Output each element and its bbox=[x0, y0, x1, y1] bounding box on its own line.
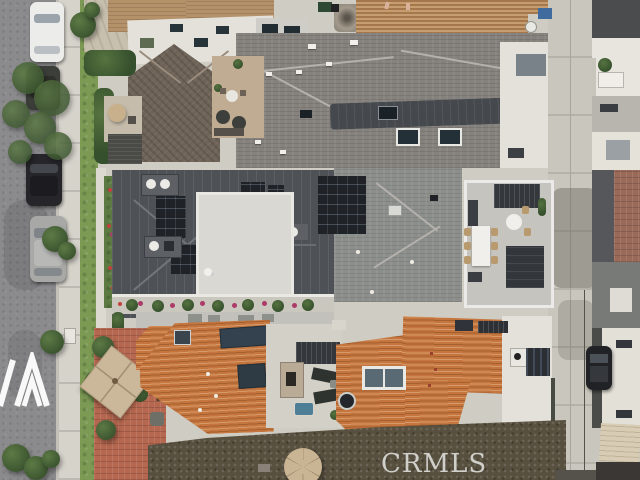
tree bbox=[8, 140, 32, 164]
magenta-flowers bbox=[170, 303, 175, 308]
rooftop-equipment bbox=[508, 148, 524, 158]
flower-clump bbox=[152, 300, 164, 312]
roof-vent bbox=[206, 372, 210, 376]
east-roof-box bbox=[610, 288, 632, 312]
deck-planter bbox=[538, 198, 546, 216]
magenta-flowers bbox=[292, 303, 297, 308]
roof-box bbox=[332, 320, 346, 330]
courtyard-pergola bbox=[296, 342, 340, 364]
flower-clump bbox=[302, 299, 314, 311]
rooftop-equipment bbox=[455, 320, 473, 331]
deck-pergola bbox=[494, 184, 540, 208]
tree bbox=[34, 80, 70, 116]
round-roof-vent bbox=[338, 392, 356, 410]
skylight bbox=[438, 128, 462, 146]
crmls-watermark: CRMLS bbox=[381, 449, 487, 479]
skylight bbox=[170, 24, 183, 32]
skylight bbox=[174, 330, 191, 345]
solar-array bbox=[318, 176, 366, 234]
deck-plant bbox=[233, 59, 243, 69]
tree bbox=[84, 2, 100, 18]
roof-vent-dark bbox=[430, 195, 438, 201]
flower-clump bbox=[212, 300, 224, 312]
vent-box-cap bbox=[514, 353, 521, 360]
tile-cap bbox=[434, 368, 437, 371]
silver-suv-rear-glass bbox=[34, 268, 62, 276]
roof-vent bbox=[296, 70, 302, 74]
patio-furniture bbox=[128, 116, 136, 124]
black-suv-windshield bbox=[30, 164, 58, 173]
roof-vent bbox=[214, 394, 218, 398]
rooftop-equipment bbox=[478, 321, 508, 333]
aerial-photo: CRMLS bbox=[0, 0, 640, 480]
red-flowers bbox=[107, 224, 111, 228]
magenta-flowers bbox=[232, 303, 237, 308]
east-window bbox=[600, 104, 618, 112]
bistro-chair bbox=[524, 228, 531, 236]
chimney-cap bbox=[146, 179, 156, 189]
dining-table bbox=[472, 226, 490, 266]
east-brick-deck bbox=[614, 170, 640, 262]
skylight bbox=[194, 38, 208, 47]
dining-chair bbox=[464, 228, 471, 236]
utility-line bbox=[584, 290, 585, 480]
skylight-pane bbox=[365, 369, 383, 387]
dining-chair bbox=[464, 242, 471, 250]
magenta-flowers bbox=[138, 301, 143, 306]
red-flowers bbox=[118, 302, 122, 306]
skylight bbox=[216, 26, 229, 34]
roof-worker bbox=[406, 3, 410, 10]
roof-vent bbox=[370, 290, 374, 294]
magenta-flowers bbox=[200, 301, 205, 306]
chimney-cap bbox=[149, 241, 159, 251]
deck-mat bbox=[214, 128, 244, 136]
alley-suv-windshield bbox=[590, 354, 608, 363]
deck-chair bbox=[240, 90, 246, 96]
flower-clump bbox=[182, 299, 194, 311]
patio-umbrella-tan bbox=[284, 448, 322, 480]
skylight bbox=[396, 128, 420, 146]
blue-tarp bbox=[538, 8, 552, 19]
utility-box bbox=[64, 328, 76, 344]
tree bbox=[44, 132, 72, 160]
solar-panel bbox=[156, 196, 186, 238]
dining-chair bbox=[491, 228, 498, 236]
roof-vent bbox=[258, 464, 270, 472]
balcony-plants bbox=[598, 58, 612, 72]
solar-panel-glass bbox=[219, 325, 268, 348]
east-building-roof bbox=[592, 0, 640, 38]
patio-tree bbox=[96, 420, 116, 440]
roof-vent bbox=[280, 150, 286, 154]
dining-chair bbox=[491, 256, 498, 264]
deck-lounger bbox=[216, 110, 230, 124]
roof-vent bbox=[255, 140, 261, 144]
balcony-rail bbox=[592, 58, 596, 96]
deck-bench bbox=[468, 200, 478, 226]
metal-panel bbox=[516, 54, 546, 76]
solar-panel-glass bbox=[237, 363, 267, 389]
hedge bbox=[84, 50, 136, 76]
skylight bbox=[140, 38, 154, 48]
flower-clump bbox=[272, 300, 284, 312]
east-window bbox=[616, 410, 632, 418]
tree bbox=[58, 242, 76, 260]
sedan-windshield bbox=[34, 14, 60, 23]
tree bbox=[40, 330, 64, 354]
dining-chair bbox=[491, 242, 498, 250]
tree bbox=[42, 450, 60, 468]
white-flat-roof-middle bbox=[196, 192, 294, 310]
awning bbox=[599, 423, 640, 463]
dark-deck bbox=[108, 134, 142, 164]
roof-vent bbox=[198, 408, 202, 412]
magenta-flowers bbox=[262, 301, 267, 306]
rooftop-equipment bbox=[318, 2, 332, 12]
bistro-chair bbox=[522, 206, 529, 214]
dining-chair bbox=[464, 256, 471, 264]
skylight bbox=[388, 205, 402, 216]
flower-clump bbox=[242, 299, 254, 311]
tile-cap bbox=[430, 352, 433, 355]
east-dark-edge bbox=[592, 170, 614, 262]
umbrella-finial bbox=[112, 378, 118, 384]
east-window bbox=[616, 340, 632, 348]
roof-pipe bbox=[204, 268, 212, 276]
roof-vent bbox=[266, 72, 272, 76]
deck-table bbox=[226, 90, 238, 102]
roof-vent bbox=[326, 62, 332, 66]
east-dark-corner bbox=[596, 462, 640, 480]
bistro-table bbox=[506, 214, 522, 230]
balcony-planter bbox=[598, 72, 624, 88]
skylight-pane bbox=[385, 369, 403, 387]
alley-suv-roof bbox=[590, 366, 608, 382]
roof-vent bbox=[350, 40, 358, 45]
deck-chair bbox=[220, 88, 226, 94]
chimney-flue bbox=[164, 241, 174, 251]
spa bbox=[294, 402, 314, 416]
tile-cap bbox=[428, 384, 431, 387]
skylight bbox=[378, 106, 398, 120]
east-panel bbox=[606, 140, 630, 160]
logo-partial-stroke bbox=[0, 360, 13, 406]
satellite-dish bbox=[525, 21, 537, 33]
navy-sectional bbox=[526, 348, 550, 376]
outdoor-sectional bbox=[506, 246, 544, 288]
rooftop-equipment bbox=[331, 4, 339, 12]
mls-logo-watermark bbox=[0, 352, 60, 412]
flower-clump bbox=[126, 299, 138, 311]
roof-vent bbox=[356, 250, 360, 254]
sedan-rear-glass bbox=[34, 46, 60, 54]
black-suv-roof bbox=[30, 176, 58, 196]
roof-vent bbox=[410, 260, 414, 264]
skylight bbox=[300, 110, 312, 118]
patio-table bbox=[150, 412, 164, 426]
patio-umbrella bbox=[108, 104, 126, 122]
east-building-band bbox=[592, 96, 640, 132]
alley-shadow bbox=[556, 470, 596, 480]
chimney-cap bbox=[160, 179, 170, 189]
fireplace-opening bbox=[286, 372, 296, 386]
ottoman bbox=[468, 272, 482, 282]
roof-vent bbox=[308, 44, 316, 49]
